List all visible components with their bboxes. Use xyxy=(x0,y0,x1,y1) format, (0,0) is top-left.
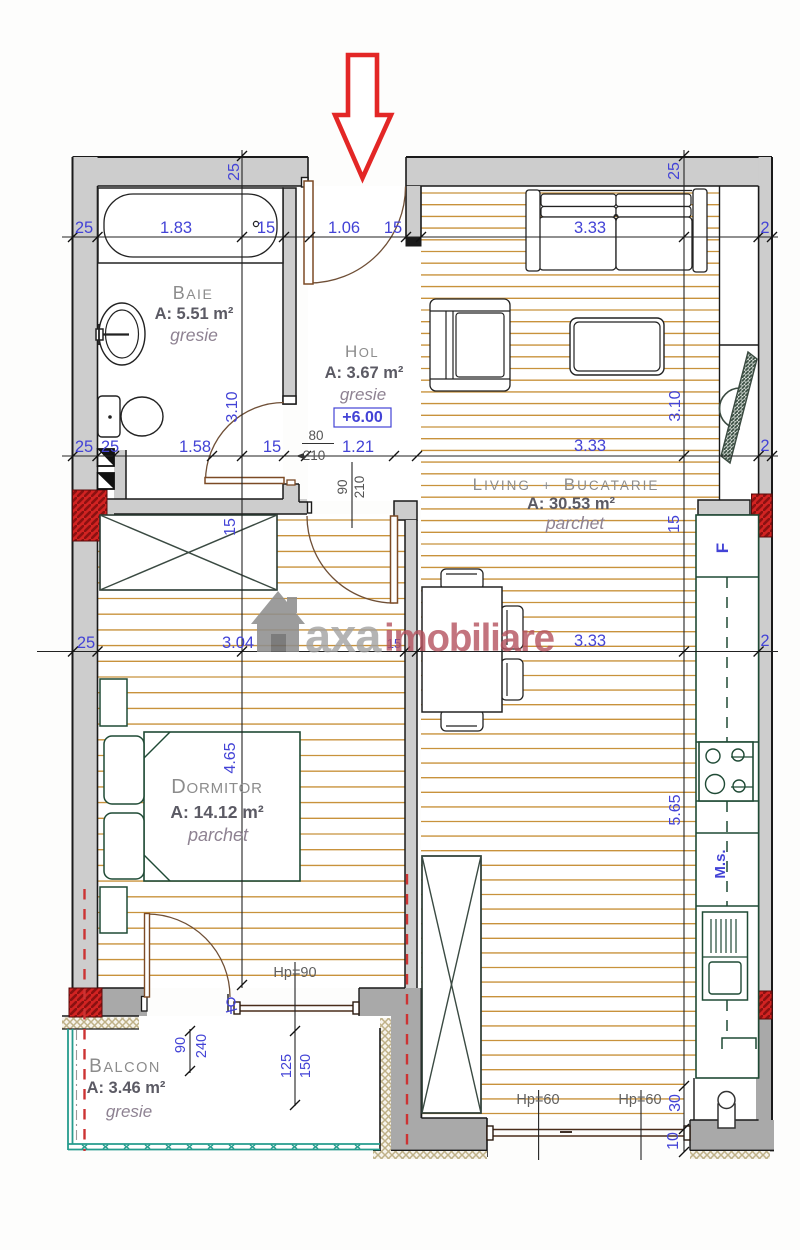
svg-text:gresie: gresie xyxy=(340,385,386,404)
svg-text:LIVING + BUCATARIE: LIVING + BUCATARIE xyxy=(473,475,660,494)
svg-text:axa: axa xyxy=(305,609,382,662)
svg-text:15: 15 xyxy=(222,518,239,536)
svg-text:15: 15 xyxy=(666,515,683,533)
svg-text:3.04: 3.04 xyxy=(222,634,254,652)
svg-text:gresie: gresie xyxy=(170,325,218,345)
svg-text:10: 10 xyxy=(665,1132,682,1150)
svg-text:25: 25 xyxy=(77,634,95,652)
svg-text:3.33: 3.33 xyxy=(574,437,606,455)
svg-text:25: 25 xyxy=(75,438,93,456)
svg-text:HOL: HOL xyxy=(345,342,379,361)
svg-text:3.10: 3.10 xyxy=(224,391,241,422)
svg-text:25: 25 xyxy=(101,438,119,456)
svg-text:210: 210 xyxy=(303,448,326,463)
svg-text:2: 2 xyxy=(760,219,769,237)
svg-text:1.83: 1.83 xyxy=(160,219,192,237)
svg-text:1.06: 1.06 xyxy=(328,219,360,237)
svg-text:125: 125 xyxy=(279,1054,295,1078)
svg-text:Hp=90: Hp=90 xyxy=(273,965,316,981)
svg-text:imobiliare: imobiliare xyxy=(384,617,555,660)
svg-text:A: 30.53 m²: A: 30.53 m² xyxy=(527,495,616,513)
svg-text:25: 25 xyxy=(666,162,683,180)
svg-text:3.33: 3.33 xyxy=(574,219,606,237)
svg-text:Hp=60: Hp=60 xyxy=(618,1092,661,1108)
svg-text:gresie: gresie xyxy=(106,1102,152,1121)
svg-text:25: 25 xyxy=(75,219,93,237)
svg-text:1.58: 1.58 xyxy=(179,438,211,456)
svg-text:150: 150 xyxy=(298,1054,314,1078)
svg-text:A: 5.51 m²: A: 5.51 m² xyxy=(155,305,234,323)
svg-text:25: 25 xyxy=(226,163,243,181)
svg-text:2: 2 xyxy=(760,632,769,650)
svg-text:5.65: 5.65 xyxy=(667,794,684,825)
svg-text:2: 2 xyxy=(760,437,769,455)
svg-text:1.21: 1.21 xyxy=(342,438,374,456)
svg-text:+6.00: +6.00 xyxy=(342,409,383,426)
svg-text:M.s.: M.s. xyxy=(712,849,729,878)
svg-text:F: F xyxy=(713,543,732,553)
svg-text:Hp=60: Hp=60 xyxy=(516,1092,559,1108)
svg-text:A: 3.67 m²: A: 3.67 m² xyxy=(325,364,404,382)
svg-text:90: 90 xyxy=(335,479,350,494)
svg-text:30: 30 xyxy=(667,1094,684,1112)
svg-text:A: 14.12 m²: A: 14.12 m² xyxy=(170,802,264,822)
svg-text:BAIE: BAIE xyxy=(173,283,214,303)
svg-text:parchet: parchet xyxy=(545,513,606,533)
svg-text:3.10: 3.10 xyxy=(667,390,684,421)
svg-text:BALCON: BALCON xyxy=(89,1056,161,1077)
svg-text:15: 15 xyxy=(263,438,281,456)
svg-text:90: 90 xyxy=(173,1037,189,1053)
svg-text:DORMITOR: DORMITOR xyxy=(171,776,262,798)
svg-text:240: 240 xyxy=(194,1034,210,1058)
svg-text:parchet: parchet xyxy=(187,825,249,845)
svg-text:80: 80 xyxy=(308,428,323,443)
svg-text:4.65: 4.65 xyxy=(222,742,239,773)
svg-text:A: 3.46 m²: A: 3.46 m² xyxy=(87,1079,166,1097)
svg-text:15: 15 xyxy=(257,219,275,237)
svg-text:15: 15 xyxy=(384,219,402,237)
svg-text:210: 210 xyxy=(352,476,367,499)
svg-text:3.33: 3.33 xyxy=(574,632,606,650)
